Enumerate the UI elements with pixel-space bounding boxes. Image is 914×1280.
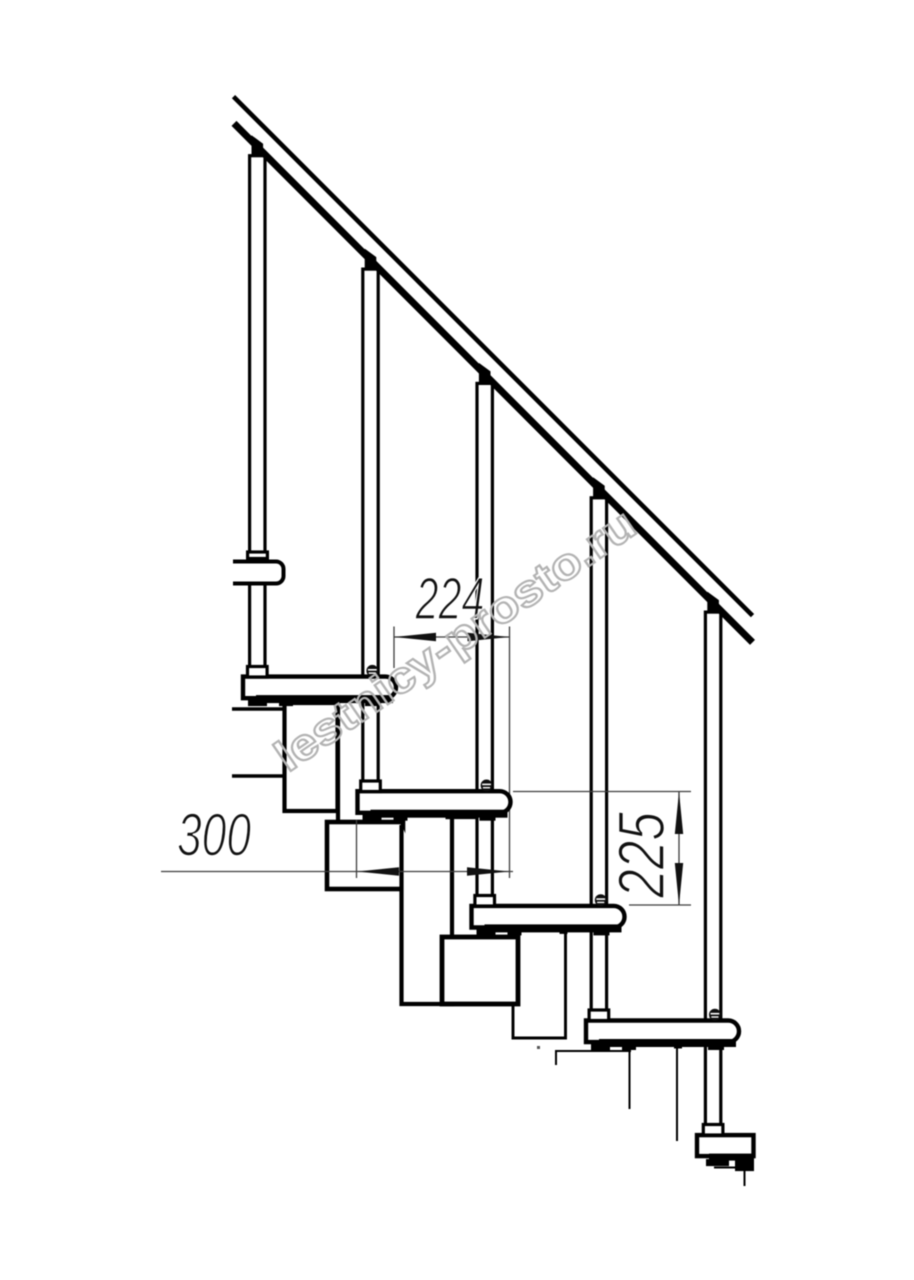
svg-text:225: 225	[604, 811, 679, 899]
svg-text:300: 300	[177, 802, 251, 869]
